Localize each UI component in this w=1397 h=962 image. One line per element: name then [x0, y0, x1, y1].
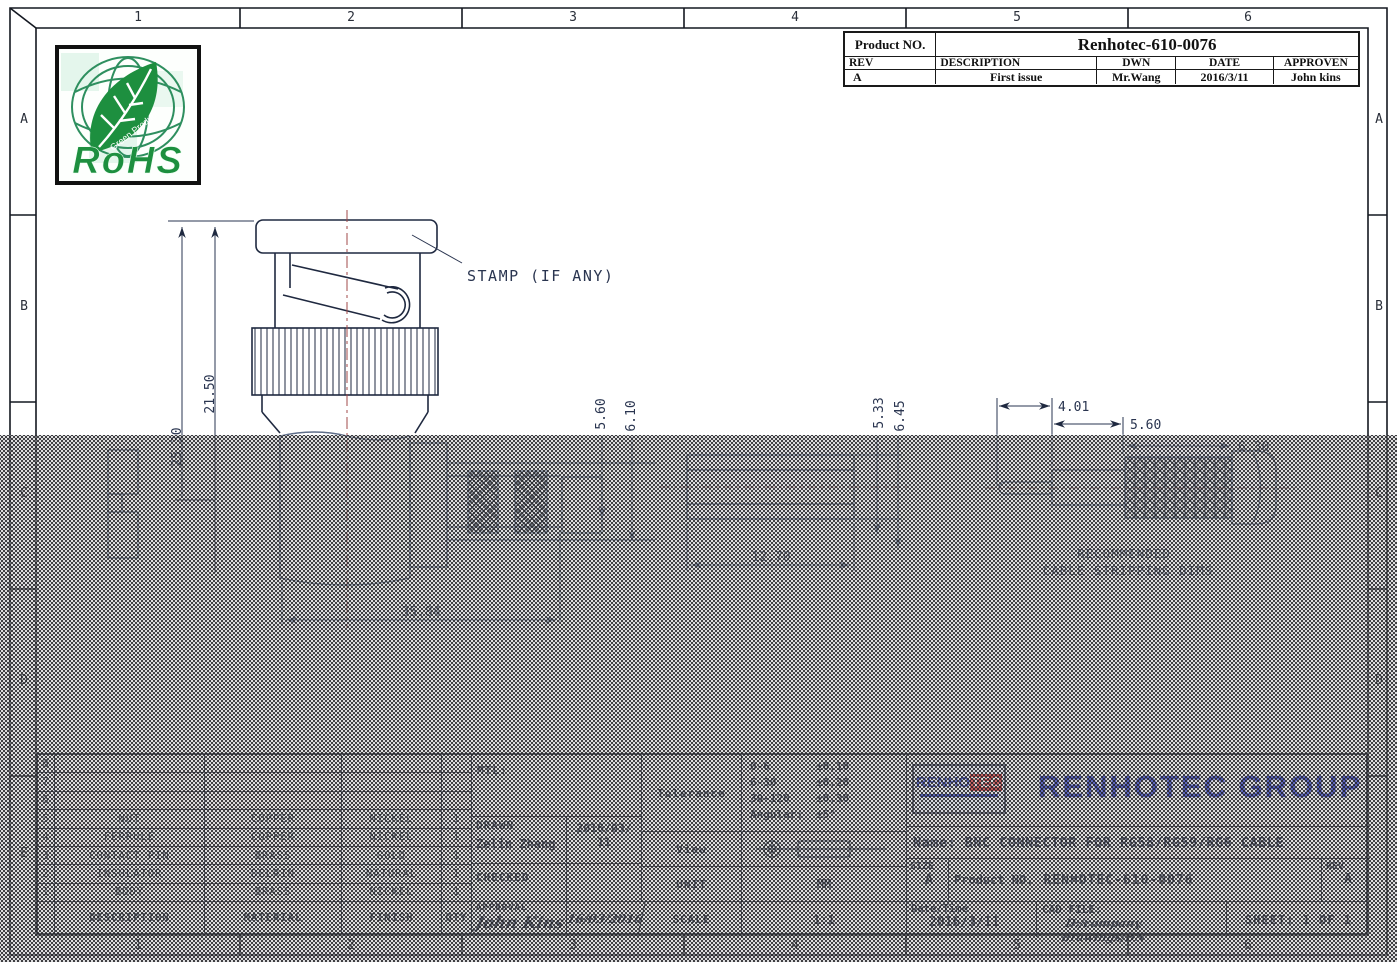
- dim-cable-od: 6.45: [893, 400, 908, 431]
- small-part-view: [108, 450, 138, 558]
- dim-knurl-id: 5.60: [594, 398, 609, 429]
- dim-knurl-od: 6.10: [624, 400, 639, 431]
- dim-body-length: 35.84: [401, 605, 440, 620]
- stamp-note: STAMP (IF ANY): [467, 267, 614, 285]
- technical-views: 25.30 21.50 5.60 6.10 5.33 6.45 4.01 5.6…: [0, 0, 1397, 962]
- dim-strip-braid: 6.30: [1238, 440, 1269, 455]
- dim-strip-jacket: 5.60: [1130, 418, 1161, 433]
- dim-cable-id: 5.33: [872, 397, 887, 428]
- dim-cable-strip: 12.70: [751, 550, 790, 565]
- engineering-drawing-sheet: 1 2 3 4 5 6 1 2 3 4 5 6 A B C D E A B C …: [0, 0, 1397, 962]
- recommended-note-line1: RECOMMENDED: [1077, 546, 1171, 561]
- recommended-note-line2: CABLE STRIPPING DIMS: [1043, 563, 1214, 578]
- dim-height-inner: 21.50: [203, 374, 218, 413]
- dimension-lines-dark: [168, 221, 1123, 573]
- dim-height-outer: 25.30: [170, 427, 185, 466]
- dimension-lines-faded: [282, 434, 1230, 624]
- dim-strip-pin: 4.01: [1058, 400, 1089, 415]
- front-view: [252, 220, 438, 433]
- section-view: [448, 463, 655, 540]
- front-view-lower: [280, 432, 447, 585]
